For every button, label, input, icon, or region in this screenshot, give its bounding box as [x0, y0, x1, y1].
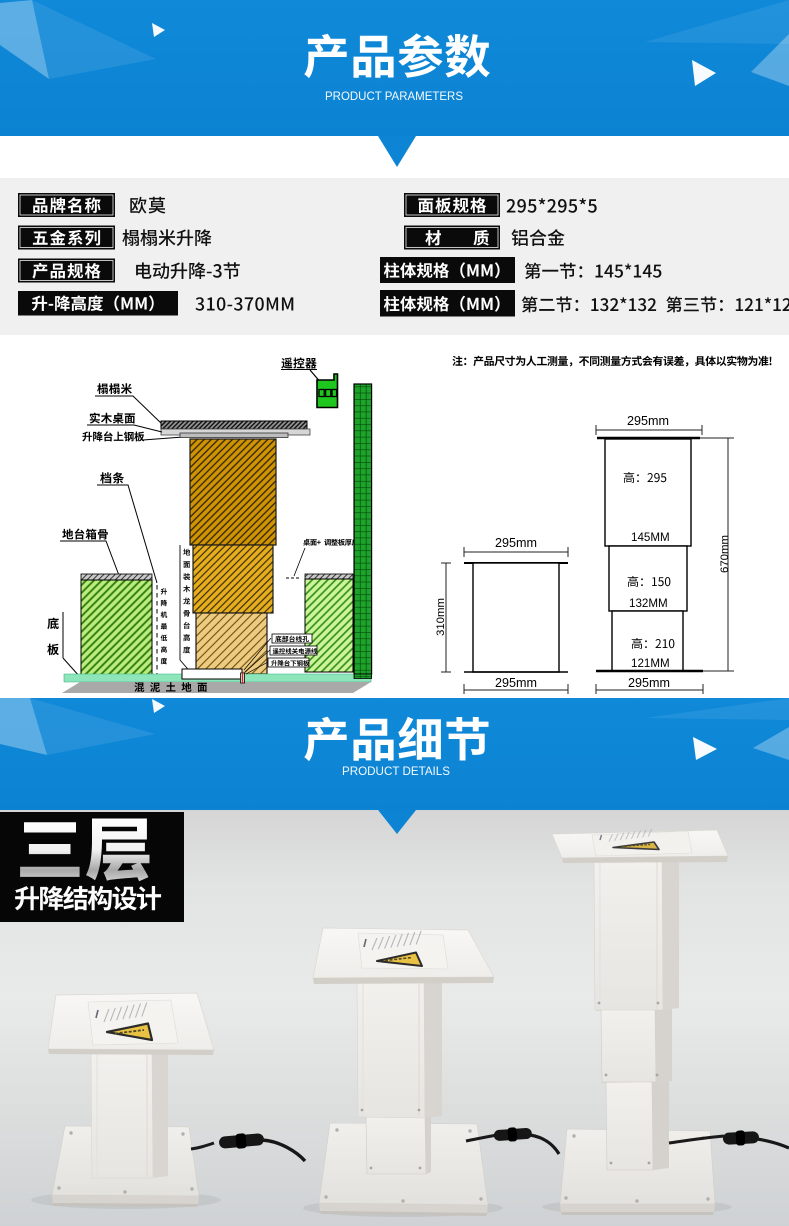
svg-text:132MM: 132MM: [629, 597, 668, 610]
svg-text:PRODUCT PARAMETERS: PRODUCT PARAMETERS: [325, 89, 463, 103]
svg-text:PRODUCT DETAILS: PRODUCT DETAILS: [342, 764, 450, 778]
svg-text:295mm: 295mm: [495, 536, 537, 550]
svg-text:670mm: 670mm: [719, 535, 731, 573]
svg-text:295mm: 295mm: [495, 676, 537, 690]
svg-text:295mm: 295mm: [628, 676, 670, 690]
svg-text:295mm: 295mm: [627, 414, 669, 428]
svg-text:145MM: 145MM: [631, 531, 670, 544]
svg-text:310mm: 310mm: [435, 598, 447, 636]
svg-text:121MM: 121MM: [631, 657, 670, 670]
